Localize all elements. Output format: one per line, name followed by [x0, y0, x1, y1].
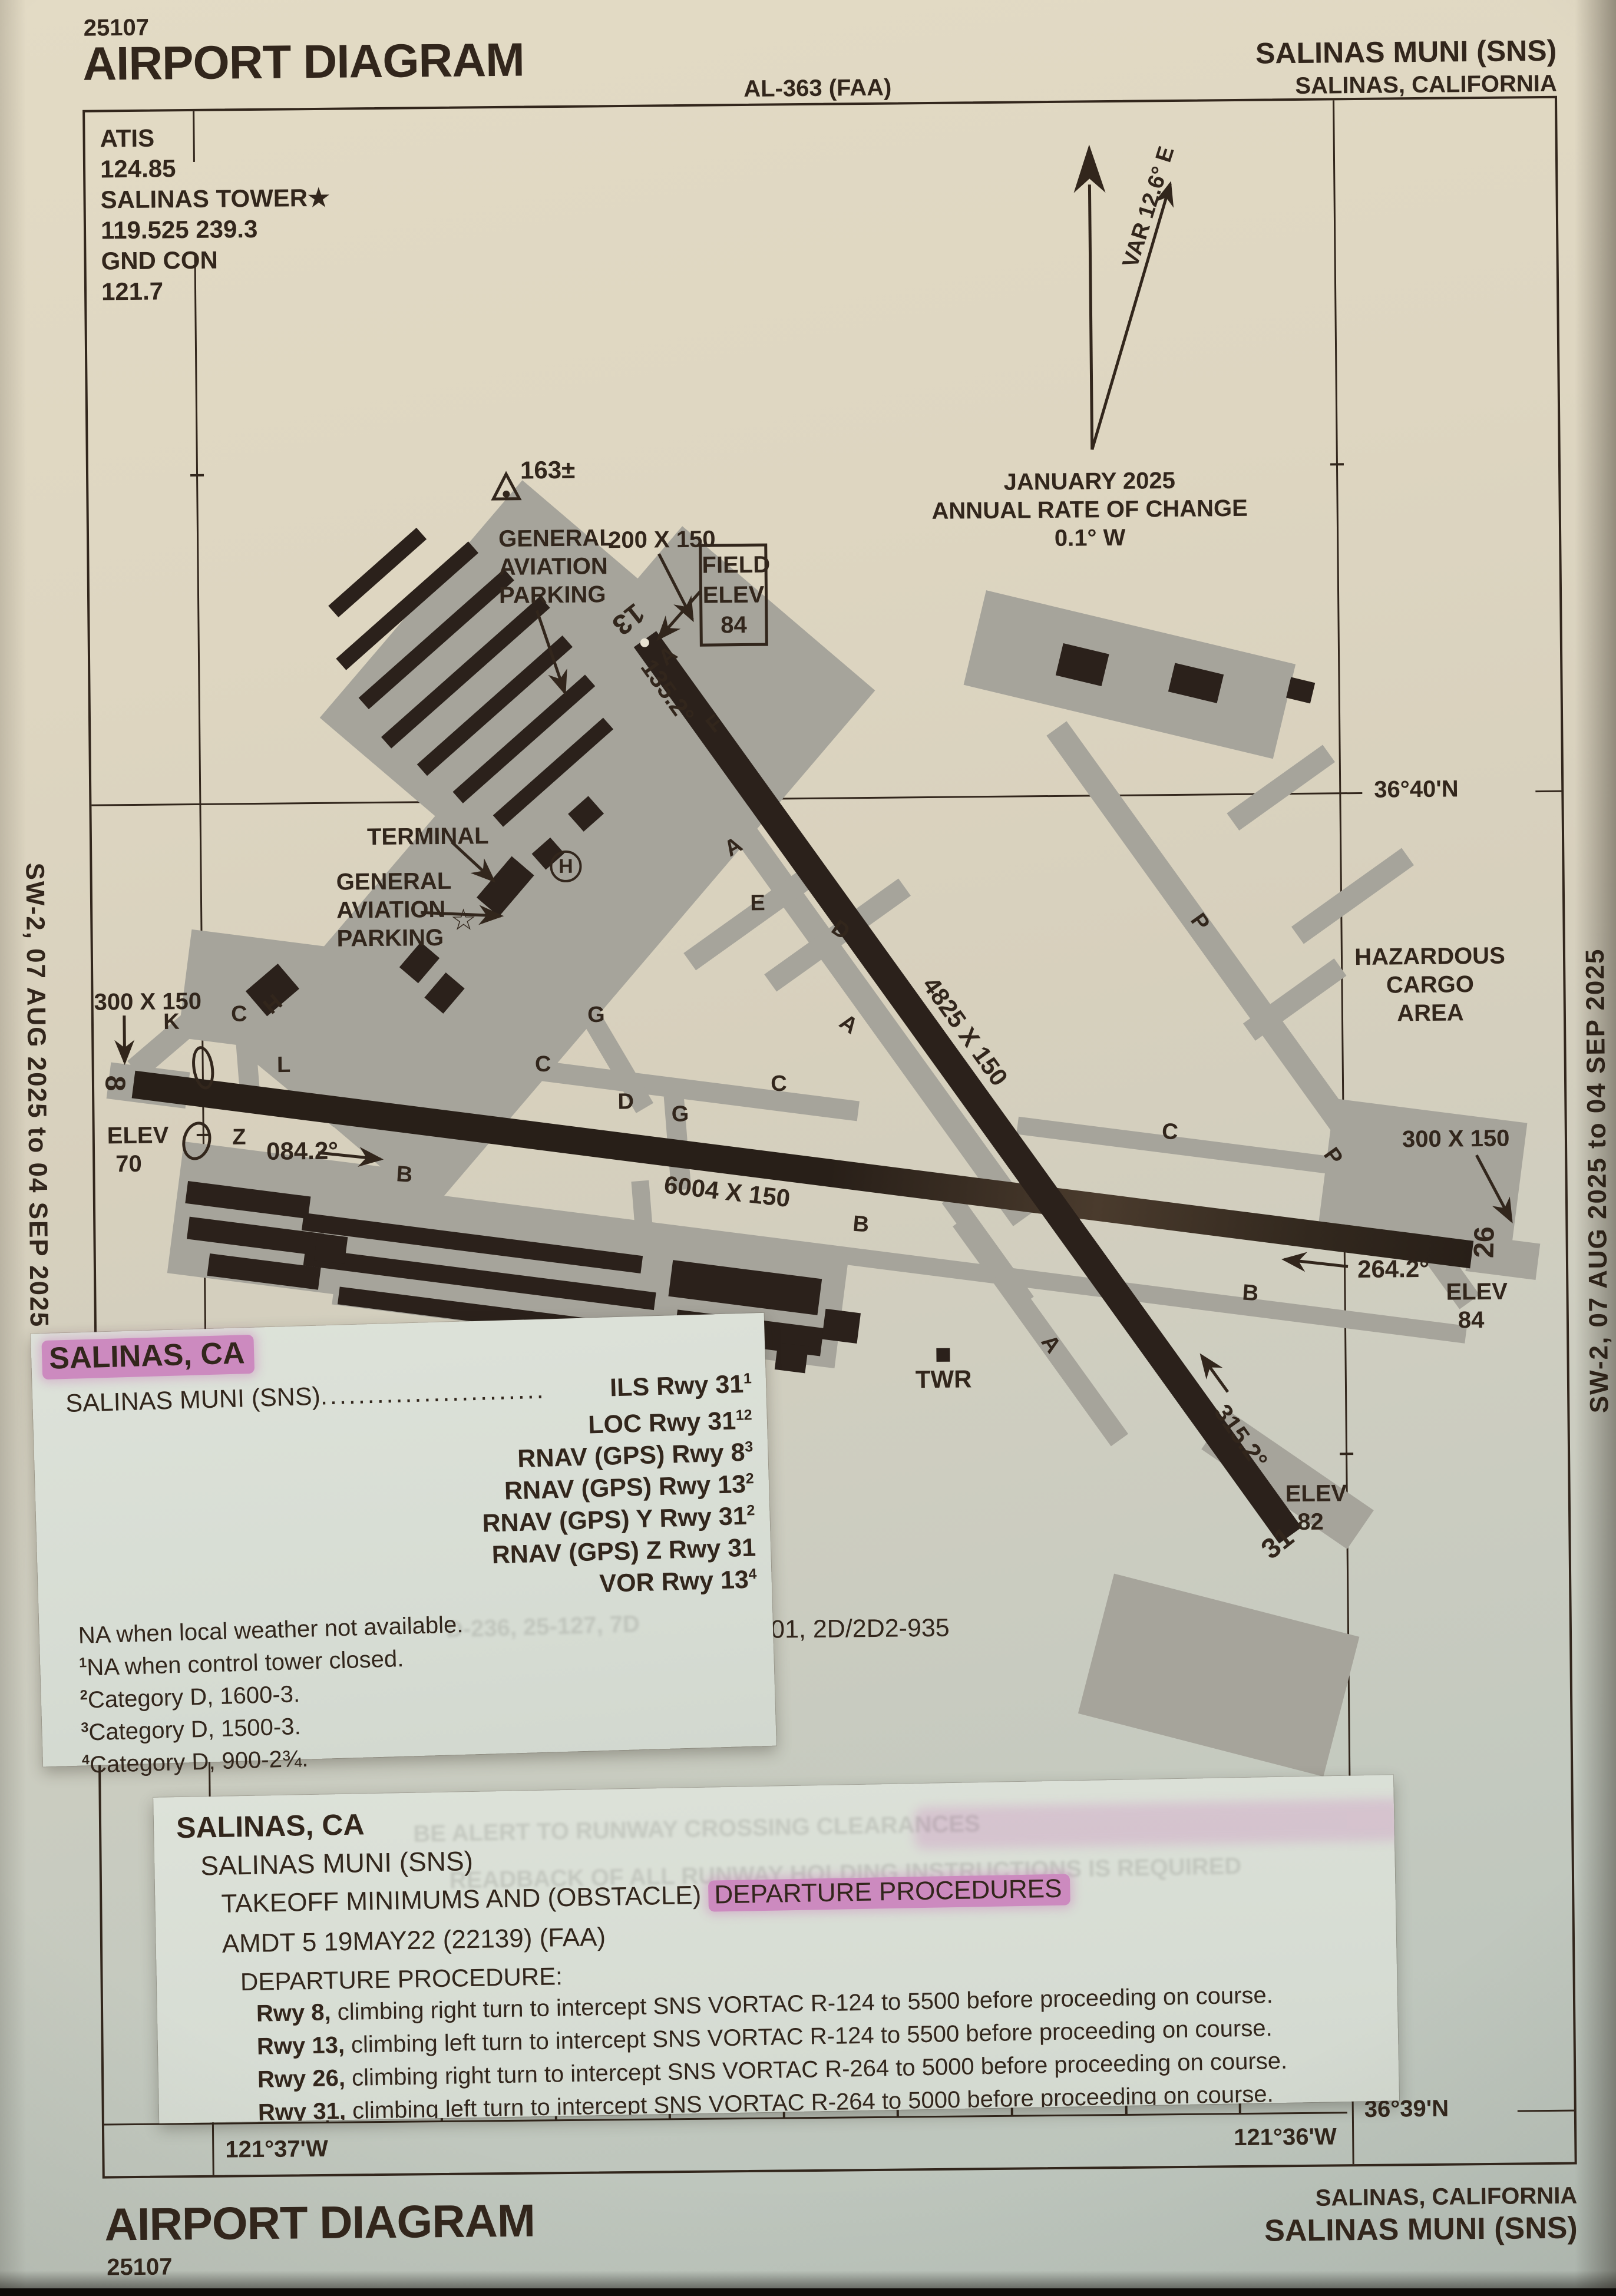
- arrow-heading-8: [318, 1152, 381, 1160]
- arrow-heading-26: [1284, 1259, 1348, 1267]
- taxiway-letter-C: C: [1161, 1119, 1179, 1146]
- taxiway-letter-B: B: [1241, 1280, 1260, 1306]
- minimums-city: SALINAS, CA: [41, 1335, 255, 1380]
- taxiway-letter-B: B: [852, 1212, 870, 1238]
- minimums-note-0: NA when local weather not available.: [78, 1612, 464, 1649]
- minimums-note-1: 1NA when control tower closed.: [79, 1646, 404, 1682]
- compass-magnetic-north-line: [1089, 184, 1172, 449]
- taxiway-letter-G: G: [672, 1101, 689, 1127]
- departure-procedure-label: DEPARTURE PROCEDURE:: [240, 1962, 563, 1996]
- leader-dots: ........................: [320, 1374, 610, 1411]
- minimums-airport-name: SALINAS MUNI (SNS): [65, 1382, 321, 1418]
- arrow-pad13: [659, 554, 692, 620]
- takeoff-city: SALINAS, CA: [176, 1808, 365, 1844]
- arrow-terminal: [452, 842, 494, 881]
- bleed-through-text: D-236, 25-127, 7D: [445, 1611, 640, 1643]
- takeoff-amdt: AMDT 5 19MAY22 (22139) (FAA): [222, 1923, 606, 1958]
- taxiway-letter-C: C: [231, 1002, 247, 1027]
- minimums-city-highlight: SALINAS, CA: [41, 1335, 255, 1380]
- taxiway-letter-C: C: [535, 1052, 551, 1077]
- taxiway-letter-K: K: [163, 1010, 180, 1035]
- taxiway-letter-B: B: [395, 1162, 414, 1188]
- arrow-ga-parking-north: [537, 610, 564, 693]
- tower-symbol-icon: [936, 1348, 950, 1362]
- taxiway-letter-E: E: [750, 891, 765, 916]
- takeoff-airport: SALINAS MUNI (SNS): [200, 1846, 474, 1881]
- bleed-highlight-blob: [914, 1798, 1399, 1850]
- arrow-field-elev: [658, 591, 701, 639]
- taxiway-letter-D: D: [617, 1089, 634, 1114]
- runway-number-8: 8: [98, 1075, 131, 1092]
- bleed-note-1: BE ALERT TO RUNWAY CROSSING CLEARANCES: [413, 1811, 980, 1848]
- taxiway-letter-Z: Z: [232, 1125, 246, 1150]
- takeoff-heading-plain: TAKEOFF MINIMUMS AND (OBSTACLE): [221, 1881, 709, 1918]
- runway-13-threshold-dot: [640, 638, 649, 647]
- takeoff-minimums-slip: BE ALERT TO RUNWAY CROSSING CLEARANCES R…: [153, 1775, 1399, 2123]
- chart-paper: 25107 AIRPORT DIAGRAM AL-363 (FAA) SALIN…: [0, 0, 1616, 2288]
- arrow-pad8: [124, 1015, 125, 1062]
- taxiway-letter-G: G: [587, 1003, 605, 1028]
- procedure-ils: ILS Rwy 311: [610, 1370, 752, 1403]
- compass-true-north-line: [1089, 184, 1092, 449]
- taxiway-letter-C: C: [771, 1071, 787, 1097]
- chart-content: 25107 AIRPORT DIAGRAM AL-363 (FAA) SALIN…: [0, 0, 1616, 2296]
- minimums-note-3: 3Category D, 1500-3.: [81, 1713, 301, 1746]
- runway-number-26: 26: [1468, 1226, 1501, 1259]
- arrow-ga-parking-south: [421, 912, 501, 917]
- arrow-heading-31: [1201, 1355, 1228, 1392]
- obstruction-dot-icon: [503, 491, 510, 498]
- takeoff-heading-highlighted: DEPARTURE PROCEDURES: [708, 1874, 1070, 1912]
- taxiway-letter-L: L: [277, 1053, 291, 1078]
- approach-minimums-slip: SALINAS, CA SALINAS MUNI (SNS) .........…: [31, 1313, 776, 1767]
- airport-diagram-photo: { "colors":{"ink":"#32261c","highlight_p…: [0, 0, 1616, 2288]
- minimums-note-2: 2Category D, 1600-3.: [80, 1681, 300, 1714]
- arrow-pad26: [1476, 1155, 1511, 1222]
